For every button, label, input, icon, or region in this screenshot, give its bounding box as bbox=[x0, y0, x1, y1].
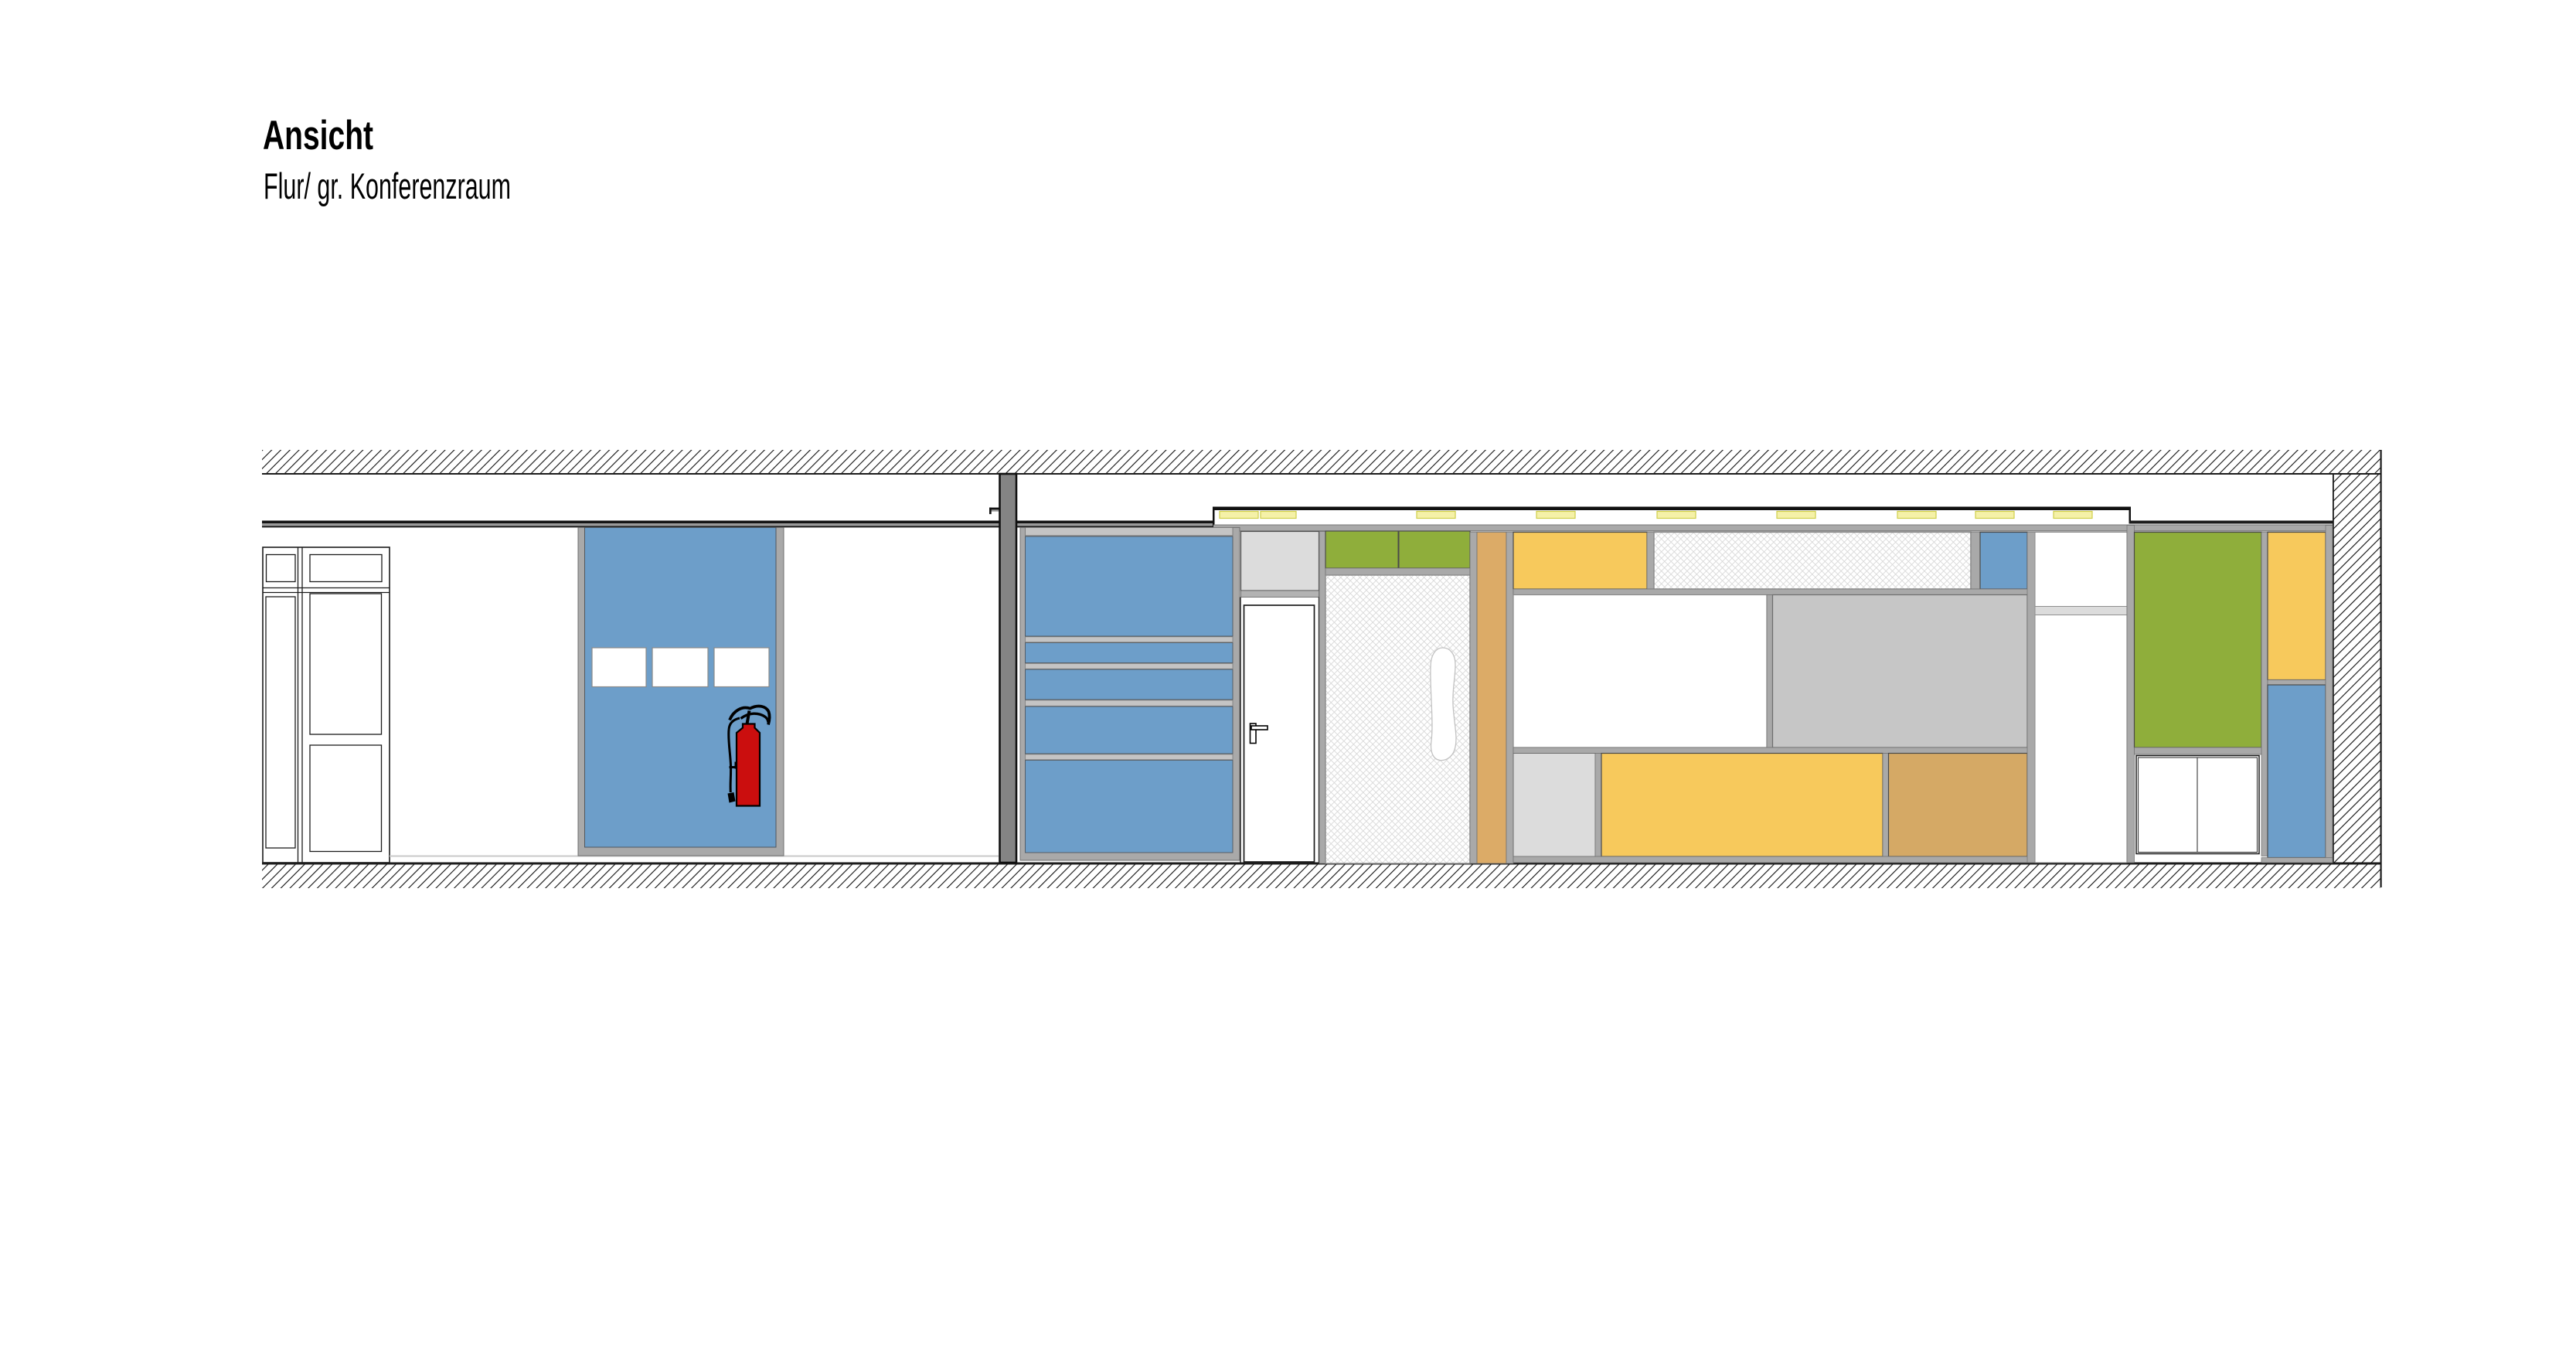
svg-text:Flur/ gr. Konferenzraum: Flur/ gr. Konferenzraum bbox=[264, 165, 511, 206]
svg-text:Ansicht: Ansicht bbox=[263, 113, 373, 158]
